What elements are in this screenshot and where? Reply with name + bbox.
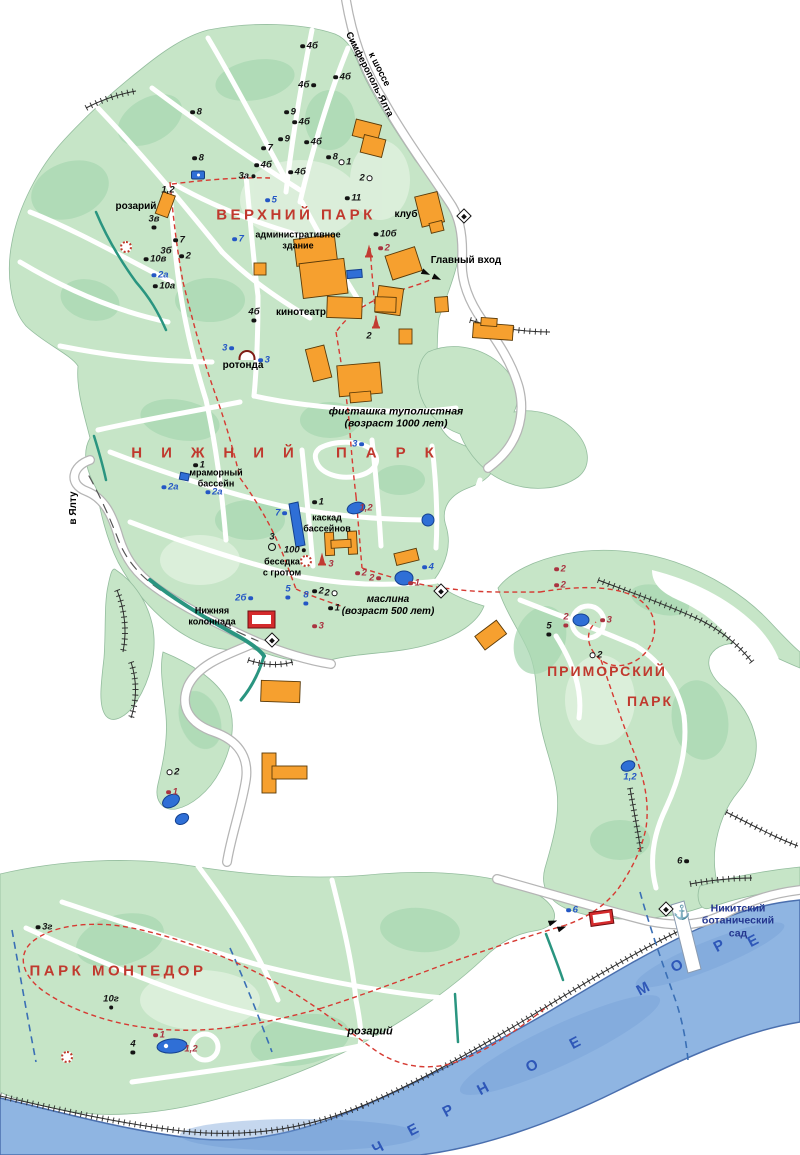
map-marker: 2	[554, 580, 566, 590]
map-label: кинотеатр	[276, 307, 326, 319]
marker-dot	[252, 318, 257, 323]
marker-dot	[311, 83, 316, 88]
marker-dot	[326, 155, 331, 160]
marker-dot	[302, 548, 307, 553]
map-annotations-layer: ВЕРХНИЙ ПАРКНИЖНИЙ ПАРКПРИМОРСКИЙПАРКПАР…	[0, 0, 800, 1155]
marker-dot	[284, 110, 289, 115]
marker-dot	[173, 238, 178, 243]
sea-name-letter: Ч	[370, 1139, 386, 1155]
map-marker: 7	[173, 235, 185, 245]
marker-dot	[408, 581, 413, 586]
marker-dot	[258, 358, 263, 363]
map-marker: 2	[360, 173, 373, 183]
sea-name-letter: Н	[475, 1080, 492, 1098]
map-marker: 4б	[292, 117, 310, 127]
marker-dot	[684, 859, 689, 864]
marker-dot	[328, 606, 333, 611]
region-title: НИЖНИЙ ПАРК	[131, 446, 453, 461]
region-title: ПАРК	[627, 694, 673, 708]
map-label: маслина (возраст 500 лет)	[342, 594, 435, 618]
map-label: фисташка туполистная (возраст 1000 лет)	[329, 406, 464, 431]
marker-dot	[161, 485, 166, 490]
map-label: розарий	[347, 1026, 392, 1039]
viewpoint-icon	[658, 901, 674, 917]
marker-dot	[205, 490, 210, 495]
map-marker: 3	[258, 355, 270, 365]
marker-dot	[153, 284, 158, 289]
map-marker: 4	[130, 1040, 135, 1055]
map-marker: 11	[345, 193, 361, 203]
map-marker: 7	[275, 508, 287, 518]
map-label: каскад бассейнов	[303, 512, 351, 533]
marker-dot	[152, 225, 157, 230]
bluebox-icon	[191, 171, 205, 180]
map-label: в Ялту	[68, 491, 80, 524]
sea-name-letter: Е	[405, 1121, 421, 1139]
viewpoint-icon	[433, 583, 449, 599]
map-marker: 2	[366, 331, 371, 341]
marker-dot	[288, 170, 293, 175]
marker-dot	[312, 500, 317, 505]
map-marker: 3	[328, 559, 333, 569]
marker-dot	[564, 623, 569, 628]
map-label: Нижняя колоннада	[188, 605, 235, 626]
map-label: беседка с гротом	[263, 556, 301, 577]
map-marker: 10б	[374, 229, 397, 239]
marker-dot	[590, 652, 596, 658]
map-marker: 1,2	[623, 772, 636, 782]
monument-icon	[373, 316, 379, 327]
botanical-garden-map: ВЕРХНИЙ ПАРКНИЖНИЙ ПАРКПРИМОРСКИЙПАРКПАР…	[0, 0, 800, 1155]
gate-icon	[421, 268, 432, 277]
marker-dot	[151, 273, 156, 278]
marker-dot	[144, 257, 149, 262]
marker-dot	[345, 196, 350, 201]
marker-dot	[232, 237, 237, 242]
map-marker: 4б	[248, 308, 259, 323]
map-label: административное здание	[255, 229, 340, 250]
anchor-icon: ⚓	[673, 905, 690, 919]
viewpoint-icon	[264, 632, 280, 648]
map-marker: 6	[566, 905, 578, 915]
flower-icon	[61, 1051, 73, 1063]
marker-dot	[179, 254, 184, 259]
marker-dot	[554, 583, 559, 588]
marker-dot	[600, 618, 605, 623]
marker-dot	[547, 632, 552, 637]
map-marker: 2	[312, 586, 324, 596]
map-marker: 5	[285, 585, 290, 600]
marker-dot	[566, 908, 571, 913]
map-marker: 8	[326, 152, 338, 162]
map-marker: 3	[352, 439, 364, 449]
map-marker: 2	[563, 613, 568, 628]
marker-dot	[131, 1050, 136, 1055]
marker-dot	[254, 163, 259, 168]
marker-dot	[192, 156, 197, 161]
map-marker: 4б	[288, 167, 306, 177]
marker-dot	[378, 246, 383, 251]
marker-dot	[355, 571, 360, 576]
map-marker: 1	[328, 603, 340, 613]
sea-name-letter: Е	[567, 1034, 583, 1052]
map-marker: 8	[192, 153, 204, 163]
marker-dot	[332, 590, 338, 596]
map-marker: 8	[190, 107, 202, 117]
sea-name-letter: Р	[711, 937, 727, 955]
map-marker: 8	[303, 591, 308, 606]
map-label: розарий	[116, 201, 157, 213]
map-marker: 1	[408, 578, 420, 588]
map-marker: 3	[312, 621, 324, 631]
map-marker: 10г	[103, 995, 119, 1010]
marker-dot	[554, 567, 559, 572]
map-marker: 1,2	[161, 185, 174, 195]
map-marker: 3	[222, 343, 234, 353]
marker-dot	[376, 576, 381, 581]
marker-dot	[312, 624, 317, 629]
marker-dot	[300, 44, 305, 49]
map-marker: 100	[284, 545, 306, 555]
sea-name-letter: О	[668, 957, 685, 976]
map-label: Никитский ботанический сад	[702, 902, 774, 939]
marker-dot	[312, 589, 317, 594]
map-marker: 4б	[254, 160, 272, 170]
marker-dot	[167, 769, 173, 775]
marker-dot	[286, 595, 291, 600]
marker-dot	[282, 511, 287, 516]
marker-dot	[304, 140, 309, 145]
marker-dot	[261, 146, 266, 151]
map-marker: 2а	[161, 482, 178, 492]
map-marker: 5	[546, 622, 551, 637]
flower-icon	[120, 241, 132, 253]
marker-dot	[292, 120, 297, 125]
marker-dot	[333, 75, 338, 80]
marker-dot	[367, 175, 373, 181]
map-marker: 7	[261, 143, 273, 153]
map-marker: 7	[232, 234, 244, 244]
map-marker: 2а	[205, 487, 222, 497]
map-label: к шоссе Симферополь-Ялта	[343, 25, 406, 119]
region-title: ВЕРХНИЙ ПАРК	[216, 208, 376, 223]
monument-icon	[366, 245, 372, 256]
map-marker: 4	[422, 562, 434, 572]
map-marker: 1	[153, 1030, 165, 1040]
map-marker: 3г	[36, 922, 53, 932]
marker-dot	[166, 790, 171, 795]
map-label: Главный вход	[431, 255, 502, 267]
marker-dot	[251, 174, 256, 179]
map-marker: 1	[312, 497, 324, 507]
map-marker: 6	[677, 856, 689, 866]
map-marker: 4б	[298, 80, 316, 90]
marker-dot	[229, 346, 234, 351]
marker-dot	[359, 442, 364, 447]
marker-dot	[193, 463, 198, 468]
gate-icon	[432, 273, 443, 282]
map-marker: 5	[265, 195, 277, 205]
marker-dot	[265, 198, 270, 203]
map-label: клуб	[394, 209, 417, 221]
gate-icon	[557, 924, 568, 933]
map-marker: 2	[554, 564, 566, 574]
marker-dot	[248, 596, 253, 601]
map-marker: 2б	[235, 593, 253, 603]
marker-dot	[153, 1033, 158, 1038]
marker-dot	[304, 601, 309, 606]
marker-dot	[374, 232, 379, 237]
map-marker: 3а	[238, 171, 255, 181]
map-marker: 2	[167, 767, 180, 777]
map-marker: 2	[378, 243, 390, 253]
gate-icon	[548, 918, 559, 927]
map-marker: 3	[600, 615, 612, 625]
marker-dot	[36, 925, 41, 930]
map-marker: 9	[284, 107, 296, 117]
map-marker: 2а	[151, 270, 168, 280]
map-marker: 2	[325, 588, 338, 598]
marker-dot	[278, 137, 283, 142]
map-marker: 9	[278, 134, 290, 144]
map-marker: 2	[179, 251, 191, 261]
flower-icon	[300, 555, 312, 567]
map-marker: 1,2	[184, 1044, 197, 1054]
map-marker: 10а	[153, 281, 175, 291]
map-marker: 2	[590, 650, 603, 660]
sea-name-letter: О	[523, 1057, 540, 1076]
map-marker: 1,2	[359, 503, 372, 513]
viewpoint-icon	[456, 208, 472, 224]
marker-dot	[339, 159, 345, 165]
sea-name-letter: Р	[440, 1102, 456, 1120]
region-title: ПРИМОРСКИЙ	[547, 664, 667, 678]
map-marker: 1	[193, 460, 205, 470]
map-marker: 10в	[144, 254, 167, 264]
marker-dot	[109, 1005, 114, 1010]
map-marker: 4б	[333, 72, 351, 82]
marker-dot	[190, 110, 195, 115]
map-marker: 1	[166, 787, 178, 797]
map-marker: 1	[339, 157, 352, 167]
rotunda-icon	[239, 350, 256, 360]
map-marker: 3в	[148, 215, 159, 230]
map-marker: 4б	[304, 137, 322, 147]
map-marker: 3	[269, 532, 274, 542]
circle-icon	[268, 543, 276, 551]
map-marker: 2	[369, 573, 381, 583]
monument-icon	[319, 553, 325, 564]
map-marker: 4б	[300, 41, 318, 51]
map-marker: 2	[355, 568, 367, 578]
marker-dot	[422, 565, 427, 570]
region-title: ПАРК МОНТЕДОР	[30, 964, 207, 979]
sea-name-letter: М	[634, 979, 652, 998]
